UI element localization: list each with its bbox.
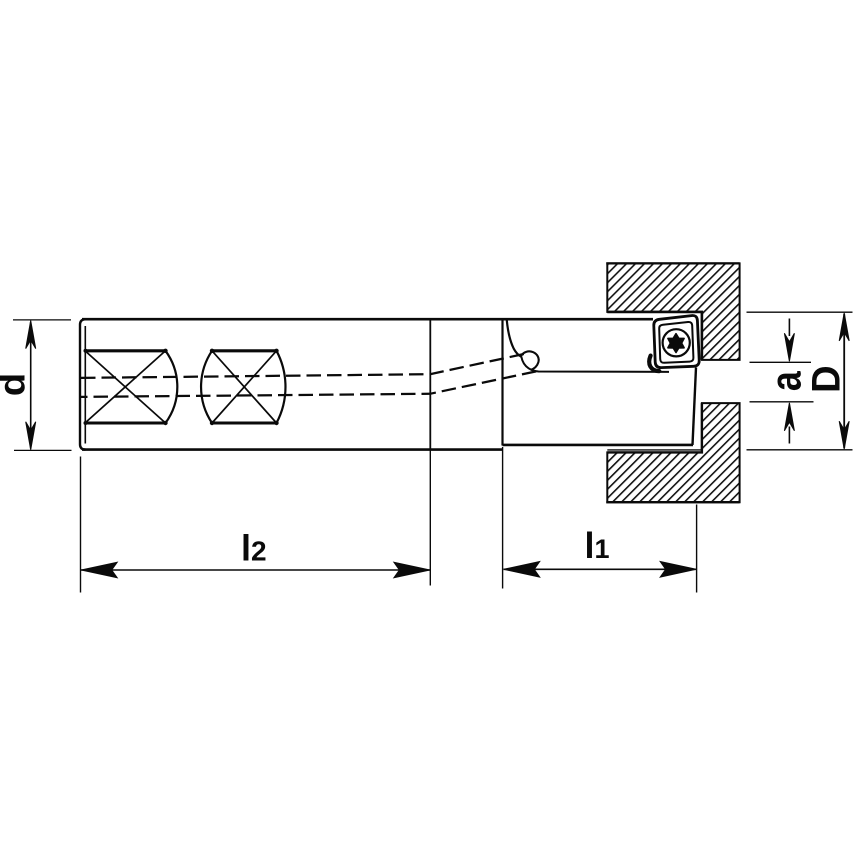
svg-text:D: D <box>804 365 848 392</box>
svg-text:a: a <box>763 370 811 391</box>
svg-text:l2: l2 <box>241 527 267 568</box>
svg-text:d: d <box>0 373 33 396</box>
svg-text:l1: l1 <box>585 525 610 566</box>
